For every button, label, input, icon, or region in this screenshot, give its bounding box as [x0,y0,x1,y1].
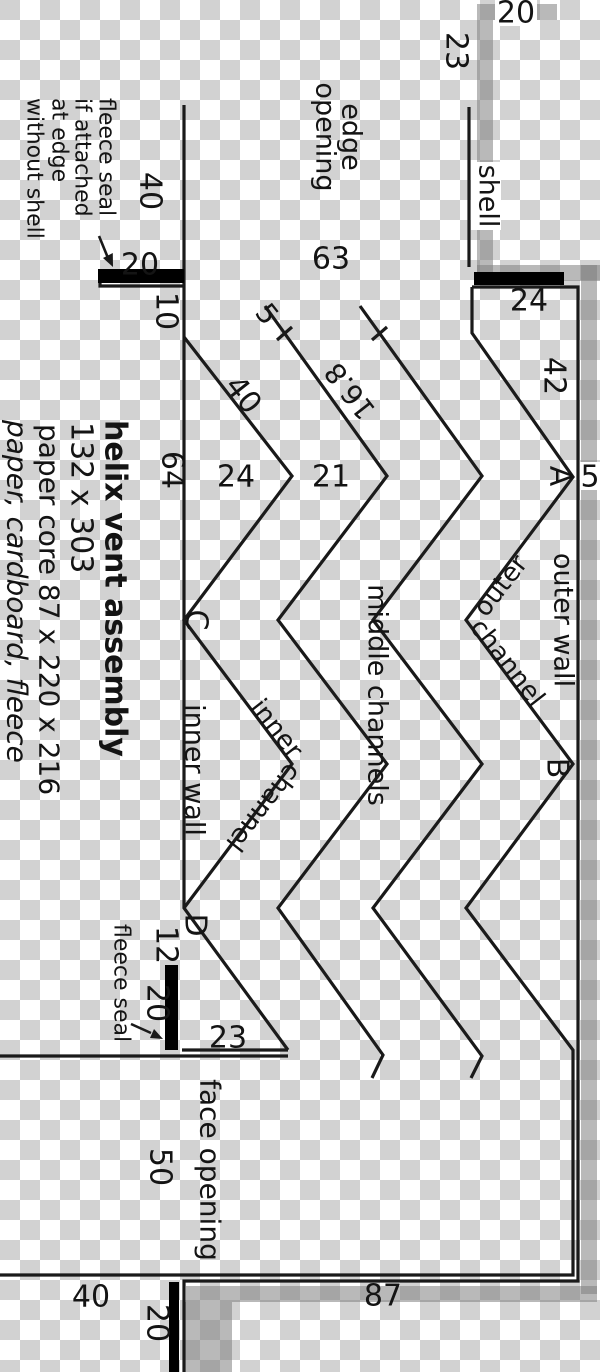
title-core-size: paper core 87 x 220 x 216 [33,424,66,795]
dim-20-seal-left: 20 [140,984,175,1022]
point-label-a: A [543,466,578,487]
dim-23-shell: 23 [439,32,474,70]
dim-40-bottom: 40 [72,1280,110,1315]
dim-21-channel: 21 [312,460,350,495]
fleece-note-line4: without shell [22,98,47,239]
diagram-title: helix vent assembly [98,420,133,757]
dim-42-outer: 42 [537,357,572,395]
middle-channels-label: middle channels [362,584,393,806]
fleece-note-line2: if attached [70,98,95,217]
point-label-d: D [178,913,213,936]
dim-87-core: 87 [364,1279,402,1314]
point-label-c: C [179,610,214,631]
face-opening-label: face opening [194,1079,227,1261]
dim-50-face: 50 [143,1148,178,1186]
dim-64-left: 64 [155,451,190,489]
dim-20-shell-top: 20 [497,0,535,31]
outer-wall-label: outer wall [548,553,579,687]
inner-wall-label: inner wall [179,704,210,836]
dim-40-wall-top: 40 [133,172,168,210]
fleece-note-line1: fleece seal [94,98,119,216]
dim-23-bottom: 23 [209,1021,247,1056]
helix-vent-assembly-diagram: 20 63 20 24 24 21 5 23 40 87 40 10 23 42… [0,0,600,1372]
shell-label: shell [473,165,504,228]
fleece-note-line3: at edge [47,98,72,182]
dim-24-channel: 24 [217,460,255,495]
dim-20-seal-bottom: 20 [140,1304,175,1342]
dim-24-top-box: 24 [510,284,548,319]
dim-10-lip: 10 [149,292,184,330]
fleece-seal-bottom-label: fleece seal [109,924,134,1042]
dim-63-edge-opening: 63 [312,242,350,277]
title-materials: paper, cardboard, fleece [1,419,34,763]
shell-bottom-left-downturn [184,1302,232,1372]
edge-opening-label-line2: opening [310,82,341,191]
title-dimensions: 132 x 303 [64,422,99,573]
dim-20-top-left: 20 [121,248,159,283]
dim-5-right-gap: 5 [580,460,599,495]
point-label-b: B [540,758,575,779]
